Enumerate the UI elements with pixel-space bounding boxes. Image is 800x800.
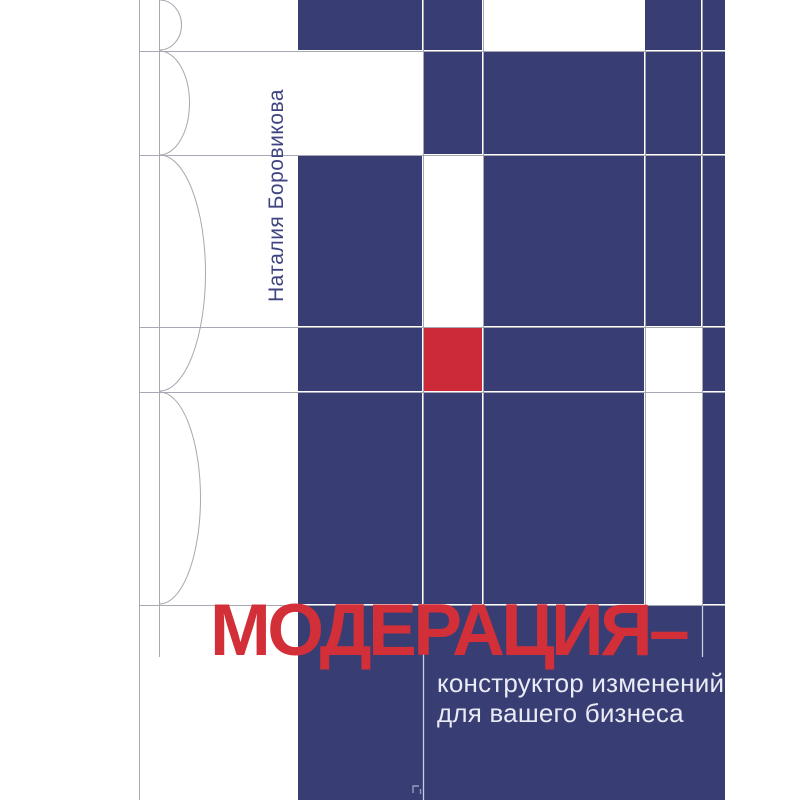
printer-mark-icon: [413, 786, 419, 793]
subtitle-line-1: конструктор изменений: [437, 668, 724, 698]
author-name: Наталия Боровикова: [265, 89, 289, 302]
book-subtitle: конструктор изменений для вашего бизнеса: [437, 668, 724, 728]
book-cover: Наталия Боровикова МОДЕРАЦИЯ– конструкто…: [0, 0, 800, 800]
book-title: МОДЕРАЦИЯ–: [210, 594, 686, 667]
subtitle-line-2: для вашего бизнеса: [437, 698, 724, 728]
